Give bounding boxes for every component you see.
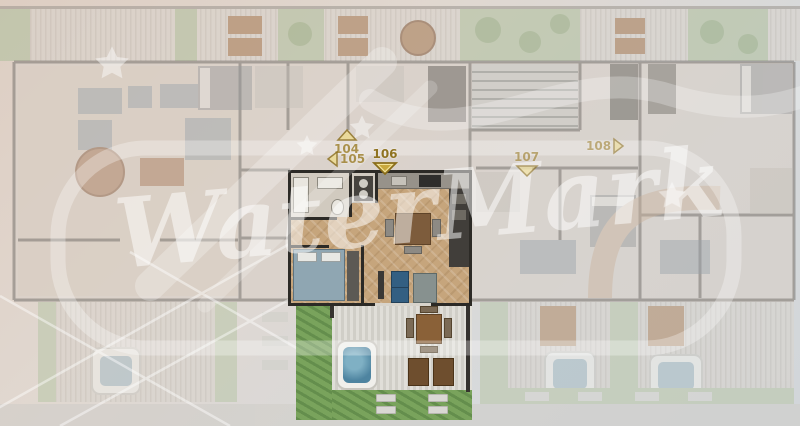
wall-post — [330, 306, 334, 318]
fridge — [452, 194, 466, 204]
stepping-stone — [428, 406, 448, 414]
wall — [349, 173, 352, 217]
bed — [293, 249, 345, 301]
outdoor-chair — [420, 346, 438, 353]
floorplan-canvas: WaterMark 104 105 106 107 108 — [0, 0, 800, 426]
dining-table — [395, 213, 431, 245]
unit-label-107[interactable]: 107 — [514, 150, 539, 178]
unit-106-terrace[interactable] — [296, 306, 472, 420]
stove — [419, 175, 441, 187]
stepping-stone — [376, 394, 396, 402]
chair — [432, 219, 441, 237]
bathroom-sink — [317, 177, 343, 189]
unit-label-108[interactable]: 108 — [586, 136, 625, 156]
outdoor-chair — [420, 306, 438, 313]
lounger — [433, 358, 454, 386]
wall — [291, 245, 329, 248]
armchair — [413, 273, 437, 303]
bathtub — [293, 177, 309, 213]
arrow-down-icon — [515, 164, 539, 178]
unit-label-106[interactable]: 106 — [372, 147, 398, 176]
toilet — [331, 199, 344, 215]
outdoor-chair — [444, 318, 452, 338]
unit-label-105[interactable]: 105 — [326, 149, 365, 169]
washer-dryer — [354, 176, 373, 201]
pillow — [321, 252, 341, 262]
lawn — [332, 390, 472, 420]
unit-number: 107 — [514, 150, 539, 164]
top-balcony-strip — [0, 6, 800, 61]
stepping-stone — [376, 406, 396, 414]
lounger — [408, 358, 429, 386]
tv-unit — [378, 271, 384, 299]
wall-post — [466, 306, 470, 392]
outdoor-chair — [406, 318, 414, 338]
unit-106-floorplan[interactable] — [288, 170, 472, 306]
wardrobe — [347, 251, 359, 301]
unit-number: 105 — [340, 152, 365, 166]
wall — [361, 245, 364, 303]
kitchen-sink — [391, 176, 407, 186]
arrow-right-icon — [612, 136, 625, 156]
chair — [385, 219, 394, 237]
hot-tub-water — [343, 347, 371, 383]
sofa — [391, 271, 409, 303]
arrow-left-icon — [326, 149, 339, 169]
stepping-stone — [428, 394, 448, 402]
wall — [291, 217, 337, 220]
unit-number: 108 — [586, 139, 611, 153]
oven — [452, 210, 466, 220]
lawn — [296, 306, 332, 420]
chair — [404, 246, 422, 254]
pillow — [297, 252, 317, 262]
unit-number: 106 — [372, 147, 397, 161]
arrow-down-icon — [372, 161, 398, 176]
arrow-up-icon — [336, 128, 358, 142]
outdoor-table — [416, 314, 442, 344]
